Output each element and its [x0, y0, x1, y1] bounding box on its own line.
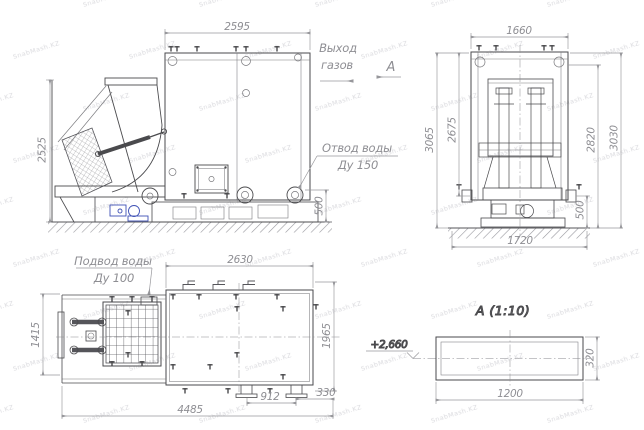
gas-outlet-label-2: газов [321, 58, 353, 72]
dim-front-h-overall: 3065 [424, 127, 436, 153]
dim-side-base: 500 [314, 196, 326, 216]
dim-front-h-inner: 2675 [447, 117, 459, 143]
skip-carriage-front [456, 79, 581, 227]
dim-plan-feet: 912 [260, 391, 280, 403]
section-a-title: А (1:10) [475, 303, 530, 318]
section-a-view: А (1:10) +2,660 [366, 303, 590, 388]
gas-outlet-label-1: Выход [319, 41, 357, 55]
pump-unit-side [110, 205, 148, 221]
dim-section-w: 1200 [497, 388, 523, 400]
grate-plan [103, 296, 161, 367]
technical-drawing: 2595 2525 500 Выход газов А Отвод воды Д… [0, 0, 644, 430]
water-drain-callout: Отвод воды Ду 150 [299, 141, 398, 188]
water-supply-label-1: Подвод воды [74, 254, 152, 268]
dim-front-width: 1660 [506, 25, 532, 37]
elevation-value: +2,660 [370, 339, 408, 351]
access-hatch [195, 165, 228, 193]
dim-plan-body-w: 2630 [227, 254, 253, 266]
dim-plan-left-d: 1415 [30, 322, 42, 348]
feeder-assembly-side [52, 78, 167, 222]
water-drain-label-1: Отвод воды [322, 141, 392, 155]
section-cut-mark: А [377, 60, 401, 77]
dim-front-base-w: 1720 [507, 235, 533, 247]
section-mark-letter: А [386, 60, 396, 75]
dim-section-h: 320 [585, 348, 597, 368]
gas-outlet-callout: Выход газов [319, 41, 357, 81]
elevation-mark [366, 351, 419, 359]
dim-plan-right-d: 1965 [321, 323, 333, 349]
dim-plan-edge: 330 [316, 387, 336, 399]
front-view [448, 45, 590, 239]
dim-plan-total: 4485 [177, 404, 203, 416]
plan-view [56, 281, 340, 398]
scrubber-body-front [471, 45, 568, 200]
plan-view-dimensions [40, 262, 337, 419]
side-view [48, 46, 332, 233]
dim-side-height: 2525 [37, 137, 49, 163]
scrubber-body-side [165, 46, 310, 203]
water-drain-label-2: Ду 150 [337, 158, 378, 172]
base-frame-side [152, 193, 318, 222]
water-supply-callout: Подвод воды Ду 100 [74, 254, 152, 294]
drawing-sheet: SnabMash.KZSnabMash.KZSnabMash.KZSnabMas… [0, 0, 644, 430]
ground-hatch-side [48, 222, 332, 233]
water-supply-fitting [141, 297, 157, 305]
dim-front-h-right-inner: 2820 [586, 127, 598, 153]
feeder-plan [58, 295, 166, 383]
dim-front-base-h: 500 [575, 200, 587, 220]
dim-side-width: 2595 [224, 21, 250, 33]
dim-front-h-right-outer: 3030 [609, 125, 621, 151]
plan-body [141, 281, 319, 398]
water-supply-label-2: Ду 100 [93, 271, 134, 285]
